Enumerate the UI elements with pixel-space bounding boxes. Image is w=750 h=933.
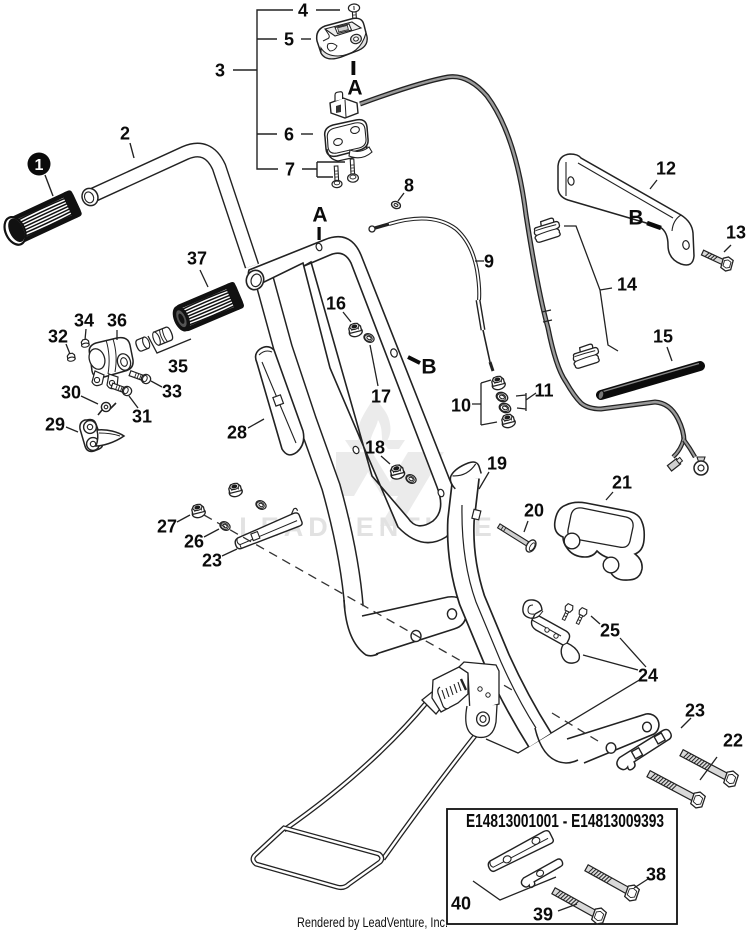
svg-text:23: 23 (685, 700, 705, 720)
svg-text:16: 16 (326, 293, 346, 313)
svg-text:9: 9 (484, 251, 494, 271)
svg-text:B: B (628, 207, 643, 230)
svg-text:18: 18 (365, 437, 385, 457)
svg-text:A: A (312, 204, 327, 227)
svg-text:20: 20 (524, 500, 544, 520)
svg-text:33: 33 (162, 381, 182, 401)
svg-text:37: 37 (187, 248, 207, 268)
svg-text:34: 34 (74, 310, 94, 330)
svg-text:35: 35 (168, 356, 188, 376)
svg-text:12: 12 (656, 158, 676, 178)
svg-text:25: 25 (600, 620, 620, 640)
svg-text:1: 1 (35, 157, 44, 174)
svg-text:30: 30 (61, 382, 81, 402)
svg-text:11: 11 (534, 380, 553, 400)
svg-text:23: 23 (202, 550, 222, 570)
svg-text:E14813001001 - E14813009393: E14813001001 - E14813009393 (466, 811, 664, 831)
svg-text:32: 32 (48, 326, 68, 346)
svg-text:17: 17 (371, 386, 391, 406)
svg-text:19: 19 (487, 453, 507, 473)
svg-text:B: B (421, 356, 436, 379)
svg-text:A: A (347, 77, 362, 100)
svg-text:Rendered by LeadVenture, Inc.: Rendered by LeadVenture, Inc. (297, 915, 448, 930)
svg-text:10: 10 (451, 395, 471, 415)
svg-text:29: 29 (45, 414, 65, 434)
svg-text:36: 36 (107, 310, 127, 330)
svg-text:38: 38 (646, 864, 666, 884)
svg-text:14: 14 (617, 274, 637, 294)
svg-text:7: 7 (285, 159, 295, 179)
svg-text:15: 15 (653, 326, 673, 346)
svg-text:22: 22 (723, 730, 743, 750)
svg-text:31: 31 (132, 406, 152, 426)
svg-text:21: 21 (612, 472, 632, 492)
svg-text:39: 39 (533, 904, 553, 924)
svg-text:40: 40 (451, 893, 471, 913)
svg-text:24: 24 (638, 665, 658, 685)
svg-text:13: 13 (726, 222, 746, 242)
svg-text:2: 2 (120, 123, 130, 143)
svg-text:4: 4 (298, 0, 308, 20)
svg-text:26: 26 (184, 531, 204, 551)
svg-text:3: 3 (215, 60, 225, 80)
svg-text:27: 27 (157, 516, 177, 536)
svg-text:8: 8 (404, 175, 414, 195)
svg-text:6: 6 (284, 124, 294, 144)
svg-text:28: 28 (227, 422, 247, 442)
svg-text:5: 5 (284, 29, 294, 49)
